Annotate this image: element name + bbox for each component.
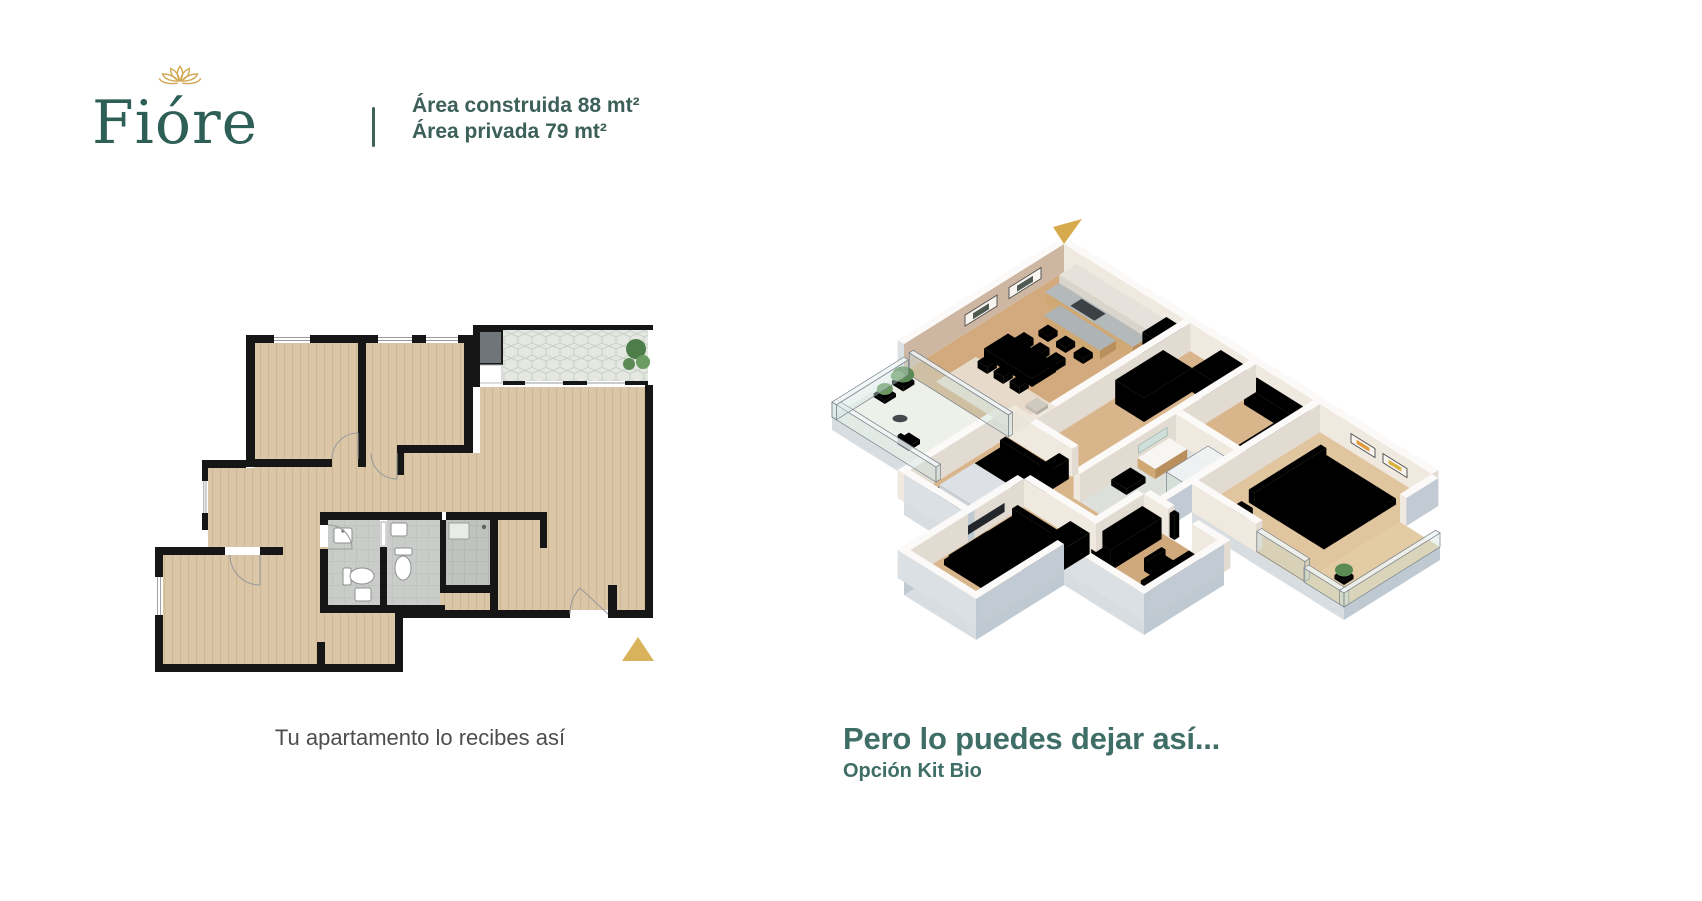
floorplan-3d xyxy=(752,212,1452,692)
brand-logo-text: Fióre xyxy=(92,88,258,158)
plan3d-subtitle: Opción Kit Bio xyxy=(843,760,982,783)
area-private-label: Área privada 79 mt² xyxy=(412,119,640,145)
balcony-2d xyxy=(477,330,650,383)
floorplan-2d xyxy=(140,285,670,680)
lotus-icon xyxy=(156,64,204,97)
area-info: Área construida 88 mt² Área privada 79 m… xyxy=(412,93,640,145)
plan2d-caption: Tu apartamento lo recibes así xyxy=(260,725,580,751)
plan3d-title: Pero lo puedes dejar así... xyxy=(843,721,1220,757)
area-built-label: Área construida 88 mt² xyxy=(412,93,640,119)
brochure-page: { "brand": { "name": "Fióre" }, "header"… xyxy=(0,0,1702,901)
triangle-marker-up-icon xyxy=(620,634,656,664)
header-divider xyxy=(372,107,375,147)
